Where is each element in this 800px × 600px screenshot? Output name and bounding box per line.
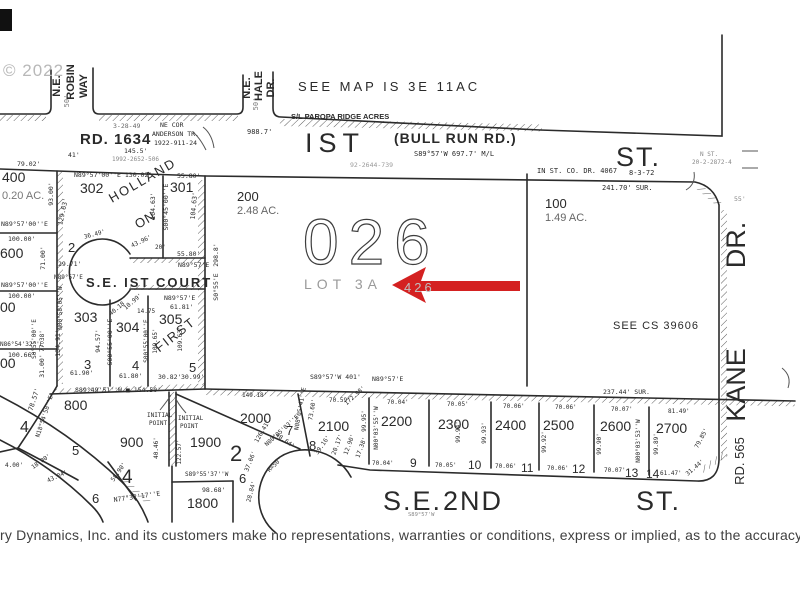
map-label: R=50' bbox=[266, 456, 284, 474]
map-label: LOT 3A bbox=[304, 276, 382, 292]
map-label: 9 bbox=[410, 456, 417, 470]
map-label: 41' bbox=[68, 151, 80, 159]
map-label: 00 bbox=[0, 299, 16, 315]
map-label: 10 bbox=[468, 458, 482, 472]
map-label: N ST. bbox=[700, 151, 718, 158]
map-label: 100 bbox=[545, 196, 567, 211]
map-label: IN ST. CO. DR. 4067 bbox=[537, 167, 617, 175]
map-label: 200 bbox=[237, 189, 259, 204]
plat-map: { "colors": { "ink": "#2a2a2a", "faint":… bbox=[0, 0, 800, 600]
map-label: 2.48 AC. bbox=[237, 205, 279, 217]
map-label: INITIAL bbox=[147, 412, 173, 419]
map-label: 4.00' bbox=[5, 462, 23, 469]
map-label: 100.00' bbox=[8, 235, 35, 243]
map-label: 81.49' bbox=[668, 408, 690, 415]
map-label: 70.06' bbox=[547, 465, 569, 472]
map-label: S00°45'00''E bbox=[162, 183, 170, 230]
map-label: POINT bbox=[180, 423, 198, 430]
map-label: 426 bbox=[404, 280, 435, 295]
map-label: RD. 565 bbox=[732, 437, 747, 485]
map-label: 2300 bbox=[438, 416, 469, 432]
map-label: 99.94' bbox=[455, 421, 462, 443]
map-label: (BULL RUN RD.) bbox=[394, 130, 517, 146]
map-label: 3-28-49 bbox=[113, 122, 140, 130]
map-label: 4 bbox=[20, 419, 29, 436]
map-label: 4 bbox=[132, 358, 139, 373]
map-label: N89°57'E bbox=[54, 274, 83, 281]
map-label: N89°57'E bbox=[164, 294, 195, 302]
map-label: 2200 bbox=[381, 413, 412, 429]
map-label: 50' bbox=[252, 98, 260, 111]
map-label: 1.49 AC. bbox=[545, 212, 587, 224]
map-label: IST bbox=[305, 128, 365, 158]
map-label: 1992-2652-506 bbox=[112, 156, 159, 163]
map-label: 70.06' bbox=[495, 463, 517, 470]
map-label: 600 bbox=[0, 245, 24, 261]
map-label: 70.05' bbox=[447, 401, 469, 408]
map-label: 134.91' bbox=[54, 329, 62, 356]
map-label: 303 bbox=[74, 309, 98, 325]
map-label: SEE MAP IS 3E 11AC bbox=[298, 79, 480, 94]
map-label: 2100 bbox=[318, 418, 349, 434]
survey-tick-marks bbox=[160, 127, 789, 413]
map-label: 109.63' bbox=[177, 326, 184, 351]
map-label: ST. bbox=[616, 142, 661, 172]
map-label: 4 bbox=[122, 467, 133, 488]
map-label: 988.7' bbox=[247, 128, 272, 136]
map-label: 70.05' bbox=[435, 462, 457, 469]
map-label: HALE bbox=[253, 71, 265, 101]
map-label: 20' bbox=[155, 244, 166, 251]
map-label: 145.5' bbox=[124, 147, 147, 155]
map-label: 78.57' bbox=[27, 387, 42, 412]
map-label: 11 bbox=[521, 461, 534, 475]
map-label: S/L PAROPA RIDGE ACRES bbox=[291, 112, 389, 121]
map-label: 40.46' bbox=[153, 437, 160, 459]
map-label: N89°57'E bbox=[178, 261, 209, 269]
map-label: S89°57'W 401' bbox=[310, 373, 361, 381]
map-label: 73.60' bbox=[307, 398, 318, 421]
map-label: N.E. bbox=[51, 75, 63, 96]
map-label: 43.96' bbox=[130, 234, 153, 250]
map-label: 79.02' bbox=[17, 160, 40, 168]
map-label: N86°54'32''E bbox=[0, 341, 44, 348]
map-label: 2ND bbox=[443, 486, 503, 516]
map-label: 61.90' bbox=[70, 369, 93, 377]
map-label: S.E. IST COURT bbox=[86, 275, 212, 290]
map-label: ANDERSON TR. bbox=[152, 130, 199, 138]
map-label: N00°03'55''W bbox=[373, 406, 380, 450]
map-label: 5 bbox=[72, 443, 79, 458]
map-label: 55.80' bbox=[177, 250, 200, 258]
map-label: WAY bbox=[78, 73, 90, 98]
map-label: 2000 bbox=[240, 410, 271, 426]
map-label: 304 bbox=[116, 319, 140, 335]
map-label: 50' bbox=[63, 95, 71, 108]
map-label: 2 bbox=[68, 240, 75, 255]
map-label: SEE CS 39606 bbox=[613, 320, 699, 332]
map-label: 00 bbox=[0, 355, 16, 371]
map-label: 99.95' bbox=[361, 410, 368, 432]
map-label: 70.07' bbox=[604, 467, 626, 474]
map-label: 298.8' bbox=[212, 243, 220, 266]
map-label: NE COR bbox=[160, 121, 184, 129]
map-label: S89°49'51''W ■ 154.50' bbox=[75, 386, 161, 394]
map-label: N00°58'05''W bbox=[57, 286, 64, 330]
map-label: 61.47' bbox=[660, 470, 682, 477]
map-label: 026 bbox=[303, 206, 440, 278]
map-label: 302 bbox=[80, 180, 104, 196]
map-label: N89°57'E bbox=[372, 375, 403, 383]
map-label: KANE bbox=[721, 348, 751, 422]
map-label: 12.90' bbox=[343, 433, 357, 456]
map-label: 70.06' bbox=[555, 404, 577, 411]
map-label: 1922-911-24 bbox=[154, 139, 197, 147]
map-label: 301 bbox=[170, 179, 194, 195]
map-label: 30.82' bbox=[158, 373, 181, 381]
map-label: S89°57'W bbox=[408, 512, 435, 518]
map-label: 99.92' bbox=[541, 431, 548, 453]
map-label: N89°57'00''E bbox=[1, 281, 48, 289]
map-label: 109.65' bbox=[152, 328, 159, 353]
corner-mark bbox=[0, 9, 12, 31]
map-label: 2 bbox=[230, 441, 242, 466]
map-label: 79.85' bbox=[693, 427, 709, 449]
map-label: 70.07' bbox=[611, 406, 633, 413]
map-label: 30.99' bbox=[181, 373, 204, 381]
map-label: 94.57' bbox=[94, 329, 102, 352]
map-labels: © 2022N.E.ROBINWAY50'N.E.HALEDR.50'SEE M… bbox=[0, 61, 751, 518]
map-label: S0°55'E bbox=[212, 273, 220, 300]
map-label: 99.90' bbox=[596, 433, 603, 455]
map-label: RD. 1634 bbox=[80, 131, 151, 148]
map-label: 12 bbox=[572, 462, 586, 476]
map-label: S89°55'37''W bbox=[185, 471, 229, 478]
map-label: 122.57' bbox=[176, 439, 183, 464]
map-label: N.E. bbox=[241, 77, 253, 98]
map-label: 1800 bbox=[187, 495, 218, 511]
map-label: N89°57'00''E bbox=[1, 220, 48, 228]
map-label: 71.00' bbox=[39, 246, 47, 269]
map-label: 149.18' bbox=[242, 392, 267, 399]
map-label: 2500 bbox=[543, 417, 574, 433]
map-label: 14 bbox=[646, 467, 660, 481]
map-label: 2400 bbox=[495, 417, 526, 433]
map-label: 70.06' bbox=[503, 403, 525, 410]
map-label: 99.89' bbox=[653, 433, 660, 455]
plat-map-canvas: © 2022N.E.ROBINWAY50'N.E.HALEDR.50'SEE M… bbox=[0, 0, 800, 600]
map-label: 237.44' SUR. bbox=[603, 388, 650, 396]
map-label: POINT bbox=[149, 420, 167, 427]
map-label: 29.71' bbox=[58, 260, 81, 268]
map-label: 93.00' bbox=[47, 182, 55, 205]
map-label: DR. bbox=[721, 222, 751, 269]
map-label: INITIAL bbox=[178, 415, 204, 422]
map-label: ST. bbox=[636, 486, 681, 516]
map-label: 55' bbox=[734, 195, 746, 203]
disclaimer-text: ry Dynamics, Inc. and its customers make… bbox=[0, 527, 800, 543]
map-label: 92-2644-739 bbox=[350, 161, 393, 169]
map-label: 6 bbox=[239, 471, 246, 486]
map-label: ROBIN bbox=[65, 64, 77, 100]
map-label: 104.63' bbox=[189, 192, 199, 220]
map-label: N00°03'53''W bbox=[635, 419, 642, 463]
map-label: 2600 bbox=[600, 418, 631, 434]
map-label: 900 bbox=[120, 434, 144, 450]
map-label: 104.63' bbox=[149, 192, 157, 219]
map-label: 17.38' bbox=[355, 436, 369, 459]
map-label: S00°55'00''E bbox=[143, 319, 150, 363]
map-label: 800 bbox=[64, 397, 88, 413]
map-label: S00°55'00''E bbox=[106, 318, 114, 365]
map-label: 31.00' bbox=[38, 354, 46, 377]
map-label: 14.75 bbox=[137, 308, 155, 315]
map-label: 1900 bbox=[190, 434, 221, 450]
map-label: 241.70' SUR. bbox=[602, 184, 653, 192]
map-label: 99.93' bbox=[481, 422, 488, 444]
map-label: S89°57'W 697.7' M/L bbox=[414, 150, 494, 158]
map-label: 6 bbox=[92, 491, 99, 506]
map-label: 20-2-2872-4 bbox=[692, 159, 732, 166]
map-label: 13 bbox=[625, 466, 639, 480]
map-label: 0.20 AC. bbox=[2, 190, 44, 202]
map-label: 28.84' bbox=[245, 480, 257, 503]
map-label: 70.04' bbox=[387, 399, 409, 406]
map-label: 37.06' bbox=[243, 450, 258, 473]
map-label: 70.04' bbox=[372, 460, 394, 467]
map-label: 61.80' bbox=[119, 372, 142, 380]
map-label: 2700 bbox=[656, 420, 687, 436]
map-label: 61.81' bbox=[170, 303, 193, 311]
map-label: DR. bbox=[265, 79, 277, 98]
map-label: 98.68' bbox=[202, 486, 225, 494]
map-label: 400 bbox=[2, 169, 26, 185]
